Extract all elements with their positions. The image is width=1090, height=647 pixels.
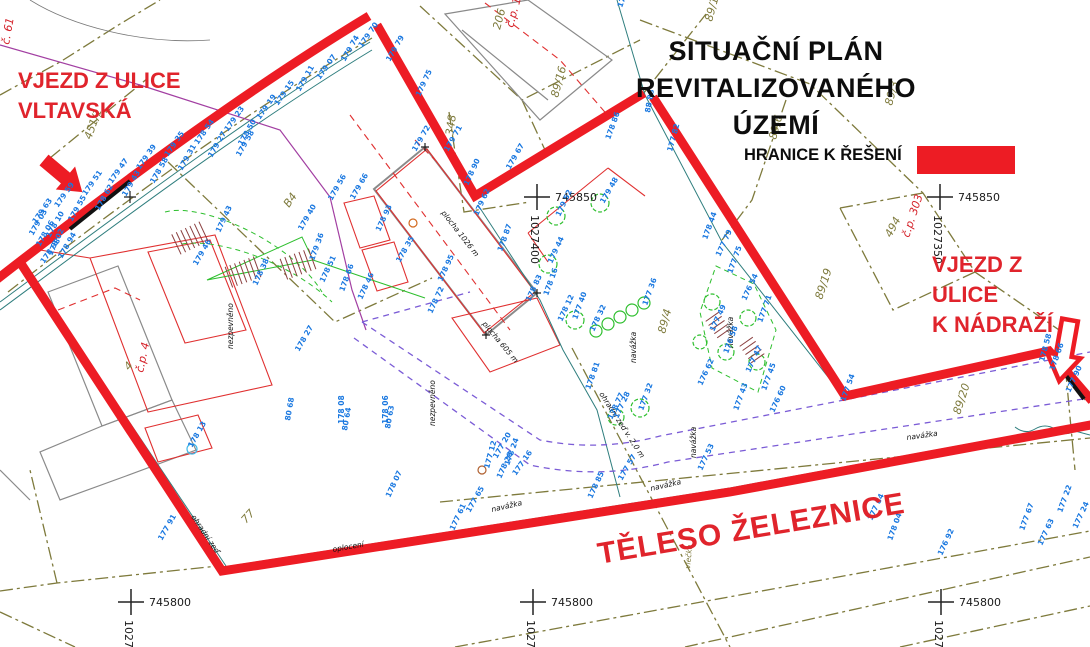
survey-point-label: 177 22 — [1055, 484, 1073, 514]
parcel-number-label: 89/20 — [950, 382, 972, 416]
survey-point-label: 179 15 — [272, 78, 296, 107]
grid-cross: 7458001027350 — [928, 589, 1001, 647]
survey-point-label: 178 85 — [586, 470, 606, 500]
page-title-line2: ÚZEMÍ — [540, 107, 1012, 144]
survey-point-label: 178 83 — [524, 273, 544, 303]
annotation-entrance-vltavska: VJEZD Z ULICE VLTAVSKÁ — [18, 66, 181, 126]
survey-point-label: 177 67 — [1017, 502, 1035, 532]
grid-easting-label: 745800 — [551, 596, 593, 609]
page-title: SITUAČNÍ PLÁN REVITALIZOVANÉHO ÚZEMÍ — [540, 33, 1012, 144]
survey-point-label: 176 92 — [936, 527, 956, 557]
survey-point-label: 177 24 — [1071, 500, 1090, 530]
parcel-number-label: B4 — [281, 190, 300, 209]
surface-type-label: navážka — [649, 477, 682, 493]
surface-type-label: navážka — [490, 498, 523, 514]
survey-point-label: 178 07 — [384, 469, 404, 499]
surface-type-label: plocha 605 m — [480, 319, 521, 365]
survey-point-label: 178 51 — [318, 254, 338, 284]
survey-point-label: 179 40 — [296, 203, 318, 232]
survey-point-label: 176 60 — [768, 384, 788, 414]
grid-northing-label: 1027350 — [932, 620, 945, 647]
survey-point-label: 178 13 — [186, 420, 208, 449]
parcel-number-label: č.p. 177 — [503, 0, 527, 29]
page-title-line1: SITUAČNÍ PLÁN REVITALIZOVANÉHO — [540, 33, 1012, 107]
survey-point-label: 177 91 — [156, 513, 178, 542]
survey-point-label: 177 63 — [1036, 517, 1056, 547]
survey-point-label: 177 43 — [731, 382, 749, 412]
survey-point-label: 179 27 — [206, 130, 228, 159]
survey-point-label: 177 32 — [636, 382, 654, 412]
legend-label: HRANICE K ŘEŠENÍ — [744, 146, 902, 165]
annotation-line: VLTAVSKÁ — [18, 96, 181, 126]
grid-cross: 7458001027400 — [520, 589, 593, 647]
survey-point-label: 177 57 — [616, 453, 638, 482]
grid-cross-layer: 7458501027400745850102735074580010274507… — [118, 184, 1001, 647]
site-plan-page: 7458501027400745850102735074580010274507… — [0, 0, 1090, 647]
survey-point-label: 179 44 — [546, 235, 566, 265]
grid-easting-label: 745850 — [958, 191, 1000, 204]
grid-easting-label: 745800 — [149, 596, 191, 609]
parcel-number-label: č. 61 — [0, 17, 17, 46]
surface-type-label: navážka — [906, 429, 939, 442]
survey-point-label: 177 40 — [570, 291, 588, 321]
survey-point-label: 179 83 — [615, 0, 633, 9]
surface-type-label: navážka — [689, 426, 698, 458]
legend-boundary-swatch — [917, 146, 1015, 174]
survey-point-label: 178 16 — [541, 267, 559, 297]
surface-type-label: nezpevněno — [226, 303, 235, 349]
survey-point-label: 179 56 — [326, 173, 348, 202]
survey-point-label: 80 68 — [283, 397, 296, 422]
survey-point-label: 179 48 — [598, 176, 620, 205]
surface-type-label: navážka — [629, 331, 638, 363]
grid-cross: 7458001027450 — [118, 589, 191, 647]
survey-point-label: 178 27 — [293, 324, 315, 353]
survey-point-label: 176 58 — [721, 325, 739, 355]
grid-northing-label: 1027400 — [528, 215, 541, 264]
grid-easting-label: 745800 — [959, 596, 1001, 609]
parcel-number-label: 89/4 — [655, 308, 674, 335]
parcel-number-label: č.p. 4 — [133, 341, 152, 374]
survey-point-label: 178 44 — [700, 211, 718, 241]
survey-point-label: 176 62 — [696, 357, 716, 387]
survey-point-label: 179 66 — [348, 172, 370, 201]
survey-point-label: 177 36 — [640, 277, 658, 307]
survey-point-label: 179 36 — [307, 232, 325, 262]
survey-point-label: 179 72 — [410, 124, 432, 153]
annotation-line: K NÁDRAŽÍ — [932, 310, 1090, 340]
survey-point-label: 179 46 — [191, 238, 213, 267]
parcel-number-label: 89/19 — [812, 267, 834, 301]
grid-northing-label: 1027450 — [122, 620, 135, 647]
survey-point-label: 178 32 — [588, 303, 608, 333]
survey-point-label: 178 95 — [436, 253, 456, 283]
survey-point-label: 177 45 — [759, 362, 777, 392]
survey-point-label: 178 93 — [374, 203, 394, 233]
parcel-number-label: 77 — [239, 507, 258, 526]
annotation-line: VJEZD Z ULICE — [18, 66, 181, 96]
annotation-entrance-nadrazi: VJEZD Z ULICE K NÁDRAŽÍ — [932, 250, 1090, 340]
vegetation — [165, 194, 776, 425]
survey-point-label: 178 66 — [337, 263, 355, 293]
survey-point-label: 178 72 — [426, 285, 446, 315]
parcel-number-label: 89/11 — [702, 0, 723, 23]
survey-point-label: 179 07 — [314, 52, 338, 81]
parcel-number-label: č.p. 303 — [899, 193, 925, 239]
grid-northing-label: 1027400 — [524, 620, 537, 647]
survey-point-label: 179 19 — [254, 92, 278, 121]
annotation-line: VJEZD Z ULICE — [932, 250, 1090, 310]
survey-point-label: 178 35 — [394, 235, 416, 264]
survey-point-label: 178 87 — [495, 223, 513, 253]
survey-point-label: 179 75 — [414, 68, 434, 98]
surface-type-label: nezpevněno — [428, 380, 437, 426]
